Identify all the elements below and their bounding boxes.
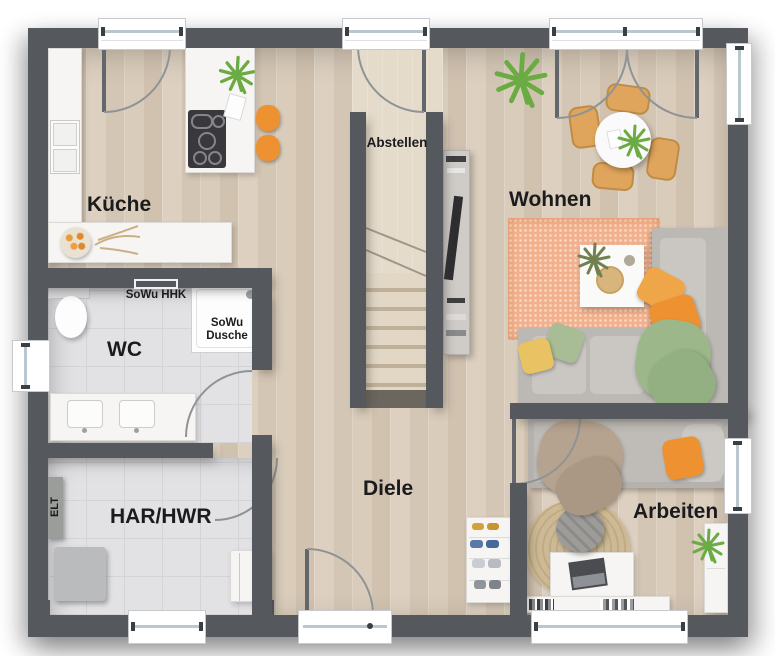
glass: [347, 30, 425, 33]
frame-tick: [735, 46, 744, 50]
coffee-vase: [624, 255, 635, 266]
frame-tick: [199, 622, 203, 631]
kitchen-sink: [50, 120, 80, 174]
coffee-tray: [596, 266, 624, 294]
sink-basin-top: [53, 123, 77, 146]
cabinet-shelf-line: [707, 568, 725, 569]
room-label-har: HAR/HWR: [110, 505, 211, 529]
vanity-sink-2: [119, 400, 155, 428]
wall-wc-har: [28, 443, 213, 458]
stair-treads: [366, 273, 426, 392]
shoes-blue: [470, 540, 483, 548]
frame-line: [552, 40, 700, 41]
stair-bottom-step: [366, 390, 426, 408]
books-2: [447, 168, 465, 173]
frame-tick: [131, 622, 135, 631]
wall-stair-right: [426, 112, 443, 408]
shoes-gray-2: [489, 580, 501, 589]
shelf-books-1: [524, 599, 554, 610]
vanity: [50, 393, 196, 441]
wall-har-right: [252, 458, 272, 615]
room-label-diele: Diele: [363, 477, 413, 501]
frame-tick: [733, 441, 742, 445]
frame-tick: [696, 27, 700, 36]
shoes-gray: [474, 580, 486, 589]
frame-tick: [735, 118, 744, 122]
sink-basin-bottom: [53, 149, 77, 172]
shoes-silver-2: [488, 559, 501, 568]
bar-stool-2: [256, 135, 280, 161]
frame-tick: [21, 385, 30, 389]
wall-stair-left: [350, 112, 366, 408]
burner-medium: [198, 132, 216, 150]
burner-oval: [191, 114, 213, 129]
shoes-gold: [472, 523, 484, 530]
glass: [738, 48, 741, 120]
frame-tick: [21, 343, 30, 347]
frame-line: [345, 40, 427, 41]
wohnen-double-door: [549, 18, 703, 50]
faucet-2: [134, 428, 139, 433]
floor-plan: Küche WC HAR/HWR Diele Wohnen Arbeiten A…: [0, 0, 775, 656]
books-5: [446, 330, 466, 336]
washer: [54, 547, 106, 601]
bar-stool-1: [256, 105, 280, 131]
side-cabinet: [704, 523, 728, 613]
room-label-abstellen: Abstellen: [364, 135, 430, 150]
wall-arbeiten-left: [510, 483, 527, 615]
wohnen-window-east: [726, 43, 752, 125]
frame-tick: [552, 27, 556, 36]
appliance-door-line: [239, 553, 240, 601]
dining-chair-north: [604, 82, 651, 116]
abstellen-terrace-door: [342, 18, 430, 50]
room-label-kueche: Küche: [87, 193, 151, 217]
vanity-sink-1: [67, 400, 103, 428]
door-handle: [367, 623, 373, 629]
laptop-keyboard: [572, 573, 605, 588]
frame-tick: [623, 27, 627, 36]
glass: [24, 345, 27, 387]
frame-tick: [423, 27, 427, 36]
arbeiten-window-east: [724, 438, 752, 514]
burner-small-2: [193, 151, 207, 165]
fruit-bowl: [60, 227, 91, 258]
daybed-orange-pillow: [661, 435, 705, 481]
dining-table: [595, 112, 651, 168]
wall-wc-right-lower: [252, 435, 272, 458]
shoes-gold-2: [487, 523, 499, 530]
frame-line: [101, 40, 183, 41]
frame-tick: [179, 27, 183, 36]
frame-tick: [681, 622, 685, 631]
arbeiten-window-south: [531, 610, 688, 644]
frame-tick: [534, 622, 538, 631]
burner-small-1: [212, 115, 225, 128]
har-window: [128, 610, 206, 644]
toilet-bowl: [55, 296, 87, 338]
wall-wohnen-arbeiten: [510, 403, 748, 419]
laptop: [568, 558, 608, 591]
cooktop: [188, 110, 226, 168]
frame-tick: [101, 27, 105, 36]
books-4: [446, 314, 466, 320]
radiator-hhk: [134, 279, 178, 289]
glass: [736, 443, 739, 509]
annotation-sowu-hhk: SoWu HHK: [124, 289, 188, 302]
faucet-1: [82, 428, 87, 433]
shoes-blue-2: [486, 540, 499, 548]
frame-tick: [345, 27, 349, 36]
shoes-silver: [472, 559, 485, 568]
glass: [536, 625, 683, 628]
annotation-sowu-dusche: SoWu Dusche: [197, 317, 257, 342]
wc-window: [12, 340, 50, 392]
door-sill-line: [303, 625, 387, 628]
glass: [103, 30, 181, 33]
room-label-wohnen: Wohnen: [509, 188, 591, 212]
frame-tick: [733, 507, 742, 511]
annotation-elt: ELT: [49, 477, 61, 537]
books-1: [446, 156, 466, 162]
wall-left: [28, 28, 48, 637]
room-label-arbeiten: Arbeiten: [633, 500, 718, 524]
room-label-wc: WC: [107, 338, 142, 362]
burner-small-3: [208, 151, 222, 165]
kitchen-terrace-door: [98, 18, 186, 50]
shoe-shelf-line-1: [469, 537, 510, 538]
shelf-books-2: [600, 599, 634, 610]
entrance-door: [298, 610, 392, 644]
glass: [133, 625, 201, 628]
books-3: [447, 298, 465, 303]
